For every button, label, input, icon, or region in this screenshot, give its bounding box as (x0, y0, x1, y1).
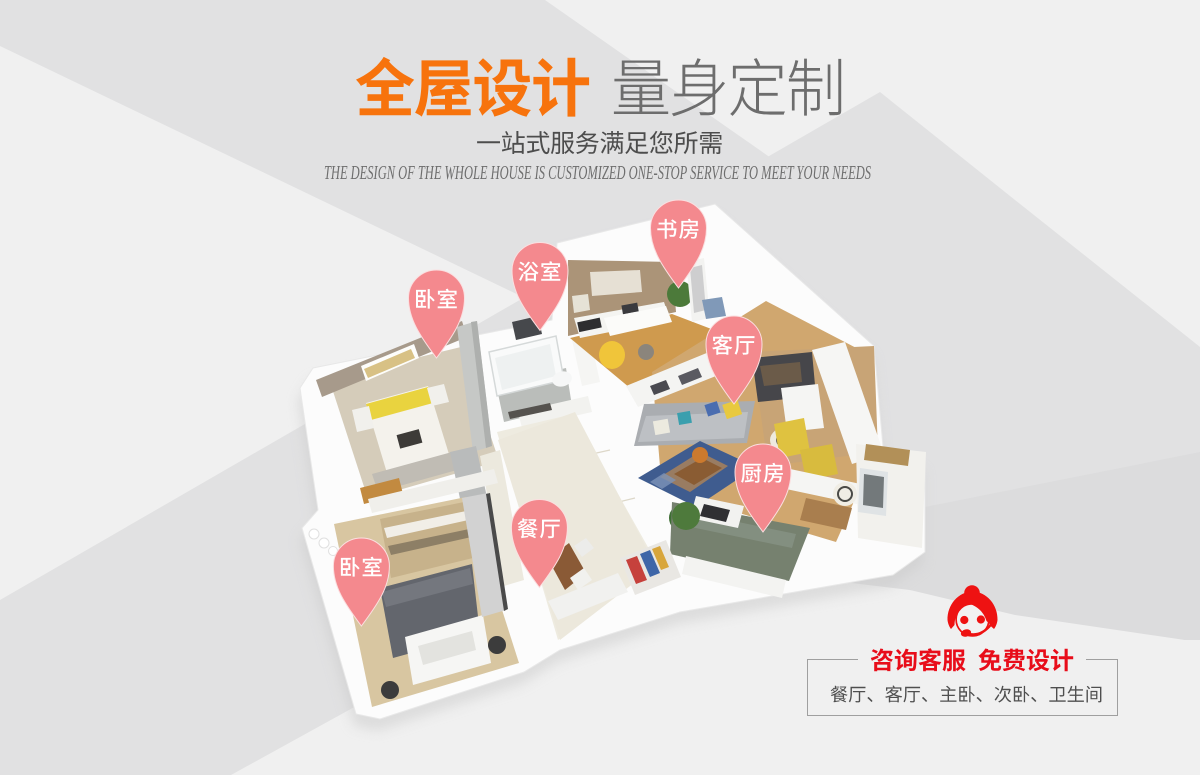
svg-text:THE DESIGN OF THE WHOLE HOUSE: THE DESIGN OF THE WHOLE HOUSE IS CUSTOMI… (324, 162, 871, 184)
